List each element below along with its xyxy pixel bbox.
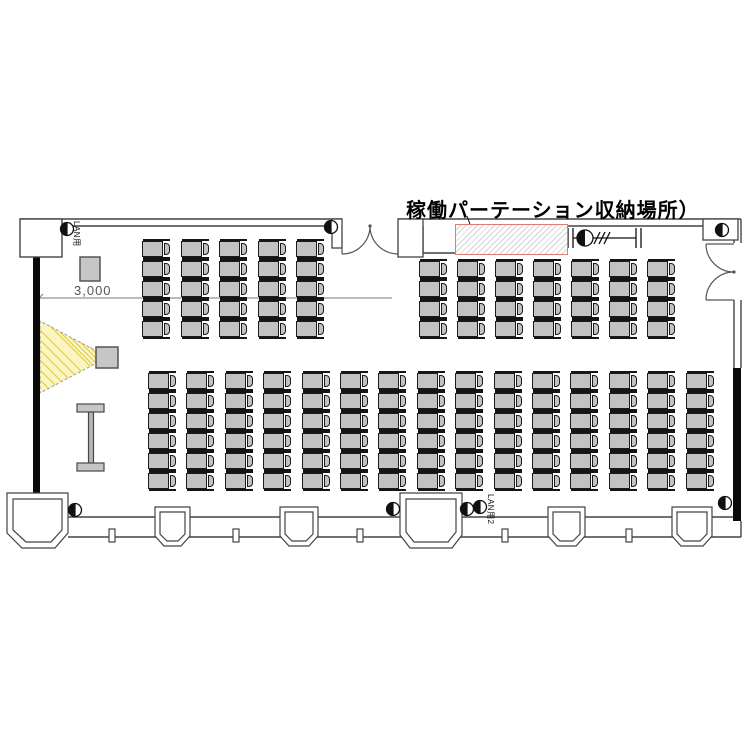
chair-backrest [592,435,598,447]
chair-seat [455,413,476,429]
chair [378,392,406,410]
floor-plan: 稼働パーテーション収納場所） 3,000 LAN用 LAN用2 [0,0,750,750]
chair [181,300,209,318]
chair [302,412,330,430]
chair-seat [457,321,478,337]
chair [148,392,176,410]
chair [378,452,406,470]
chair [570,452,598,470]
chair-seat [225,413,246,429]
chair-seat [571,301,592,317]
chair [302,432,330,450]
chair-backrest [324,395,330,407]
chair-backrest [554,395,560,407]
chair-backrest [631,475,637,487]
chair [571,280,599,298]
chair-seat [647,433,668,449]
chair-seat [532,413,553,429]
chair-seat [686,433,707,449]
chair-seat [225,473,246,489]
chair-backrest [280,283,286,295]
chair [647,280,675,298]
chair-seat [570,393,591,409]
chair [186,392,214,410]
chair-backrest [669,455,675,467]
chair-backrest [516,395,522,407]
chair-seat [296,321,317,337]
chair [494,452,522,470]
chair [647,320,675,338]
chair-seat [457,301,478,317]
chair [219,280,247,298]
chair-backrest [170,475,176,487]
chair-backrest [208,455,214,467]
chair-seat [419,261,440,277]
chair [296,240,324,258]
chair-seat [219,241,240,257]
chair [340,412,368,430]
chair [647,300,675,318]
chair-backrest [592,415,598,427]
chair-backrest [362,455,368,467]
chair-seat [186,413,207,429]
chair-seat [417,413,438,429]
chair [302,372,330,390]
chair-backrest [631,455,637,467]
chair-seat [419,301,440,317]
chair-backrest [247,415,253,427]
chair-backrest [324,455,330,467]
chair-seat [495,301,516,317]
chair-seat [609,321,630,337]
chair [258,300,286,318]
chair-backrest [280,263,286,275]
chair-backrest [400,435,406,447]
chair [686,412,714,430]
chair-seat [186,453,207,469]
chair [533,300,561,318]
chair-seat [225,453,246,469]
chair [533,260,561,278]
chair-seat [225,433,246,449]
chair-backrest [708,375,714,387]
chair [378,412,406,430]
chair-backrest [631,395,637,407]
chair [570,372,598,390]
chair-backrest [669,303,675,315]
chair-backrest [318,243,324,255]
chair [148,412,176,430]
chair [181,240,209,258]
chair-backrest [247,375,253,387]
chair-backrest [324,375,330,387]
chair [417,432,445,450]
chair-backrest [708,395,714,407]
chair-backrest [631,435,637,447]
chair-backrest [362,395,368,407]
chair [225,452,253,470]
chair-seat [532,473,553,489]
chair [495,300,523,318]
chair-backrest [479,263,485,275]
chair [647,452,675,470]
chair-backrest [554,375,560,387]
chair [686,432,714,450]
chair [263,472,291,490]
chair-seat [302,413,323,429]
chair [219,240,247,258]
chair-backrest [318,303,324,315]
chair-seat [455,453,476,469]
chair-seat [609,393,630,409]
chair [455,472,483,490]
chair-backrest [517,323,523,335]
chair-seat [455,373,476,389]
chair-backrest [669,323,675,335]
chair-seat [571,321,592,337]
chair-backrest [555,323,561,335]
lan-outlet-label-top: LAN用 [71,221,82,247]
chair-backrest [517,303,523,315]
chair [148,432,176,450]
chair-seat [494,393,515,409]
chair-backrest [517,263,523,275]
chair-seat [181,241,202,257]
chair-seat [609,473,630,489]
chair [186,432,214,450]
chair [219,260,247,278]
chair-backrest [669,395,675,407]
chair-seat [142,321,163,337]
chair-backrest [516,415,522,427]
chair [186,452,214,470]
chair [296,300,324,318]
chair [532,392,560,410]
chair-backrest [555,283,561,295]
chair [533,280,561,298]
chair-seat [686,373,707,389]
chair [647,372,675,390]
chair [609,452,637,470]
chair [647,472,675,490]
chair-seat [532,433,553,449]
chair [142,320,170,338]
chair-seat [181,281,202,297]
chair-seat [494,373,515,389]
chair-seat [378,433,399,449]
chair [378,432,406,450]
chair-backrest [592,475,598,487]
chair-backrest [285,455,291,467]
chair [494,392,522,410]
chair [225,472,253,490]
chair-backrest [208,475,214,487]
chair [417,412,445,430]
chair [419,260,447,278]
chair [609,412,637,430]
chair [647,392,675,410]
chair [417,372,445,390]
chair-backrest [439,375,445,387]
chair-seat [378,373,399,389]
chair-seat [263,433,284,449]
chair-seat [340,413,361,429]
chair-seat [148,373,169,389]
chair-seat [296,261,317,277]
chair-backrest [479,283,485,295]
chair-backrest [208,395,214,407]
chair [571,300,599,318]
chair-seat [494,473,515,489]
chair-backrest [362,375,368,387]
chair-seat [494,433,515,449]
chair [225,392,253,410]
chair-seat [533,261,554,277]
chair-seat [263,413,284,429]
chair-seat [302,433,323,449]
chair-backrest [203,303,209,315]
chair [532,412,560,430]
chair-backrest [439,455,445,467]
chair-seat [647,413,668,429]
chair-seat [495,261,516,277]
chair-backrest [247,475,253,487]
chair-seat [532,453,553,469]
chair-seat [419,281,440,297]
chair-backrest [439,475,445,487]
chair-backrest [477,415,483,427]
chair [455,452,483,470]
chair-backrest [669,375,675,387]
chair [302,472,330,490]
chair-seat [186,433,207,449]
chair-backrest [400,375,406,387]
chair [263,452,291,470]
chair [378,472,406,490]
chair [181,280,209,298]
chair-seat [570,473,591,489]
chair-backrest [285,395,291,407]
chair-backrest [631,263,637,275]
chair-backrest [592,455,598,467]
chair-backrest [477,435,483,447]
chair-seat [419,321,440,337]
chair-seat [258,261,279,277]
chair-backrest [208,435,214,447]
chair-backrest [241,303,247,315]
chair-backrest [318,323,324,335]
chair-backrest [362,475,368,487]
chair-backrest [318,283,324,295]
chair-seat [417,373,438,389]
chair-backrest [170,455,176,467]
chair-seat [457,281,478,297]
chair-backrest [441,283,447,295]
chair-seat [417,453,438,469]
chair-backrest [439,435,445,447]
chair-seat [181,321,202,337]
chair [494,372,522,390]
chair [495,260,523,278]
chair-backrest [441,323,447,335]
chair [532,432,560,450]
chair-backrest [170,375,176,387]
chair-backrest [479,303,485,315]
chair-backrest [554,475,560,487]
chair-seat [186,393,207,409]
chair [417,452,445,470]
chair-seat [142,281,163,297]
chair [148,472,176,490]
chair [494,472,522,490]
chair-seat [647,393,668,409]
chair [457,300,485,318]
chair [258,240,286,258]
chair-backrest [400,475,406,487]
chair-backrest [593,303,599,315]
chair-seat [148,393,169,409]
chair-seat [219,261,240,277]
chair-seat [263,373,284,389]
chair-backrest [708,475,714,487]
chair-seat [495,321,516,337]
chair [609,300,637,318]
chair [494,432,522,450]
chair-backrest [669,415,675,427]
chair-backrest [554,415,560,427]
chair [186,372,214,390]
chair-backrest [631,375,637,387]
chair-backrest [203,323,209,335]
chair [570,392,598,410]
chair-seat [686,413,707,429]
chair-seat [340,453,361,469]
chair-seat [296,241,317,257]
chair-backrest [669,435,675,447]
chair-seat [647,321,668,337]
chair-seat [258,301,279,317]
chair [142,240,170,258]
chair [571,260,599,278]
chair-backrest [479,323,485,335]
chair-backrest [324,435,330,447]
chair-seat [219,301,240,317]
chair-backrest [592,375,598,387]
chair-backrest [441,303,447,315]
chair-backrest [247,455,253,467]
chair-backrest [203,263,209,275]
chair [457,280,485,298]
chair-backrest [631,323,637,335]
chair-backrest [164,263,170,275]
chair-seat [302,373,323,389]
chair-backrest [669,475,675,487]
chair-backrest [631,303,637,315]
chair [417,472,445,490]
chair-seat [148,433,169,449]
chair-seat [609,433,630,449]
chair [340,392,368,410]
chair-backrest [285,375,291,387]
chair [181,260,209,278]
chair-seat [533,321,554,337]
chair-backrest [555,263,561,275]
seating-area [0,0,750,750]
chair-seat [609,453,630,469]
chair [186,472,214,490]
chair [686,392,714,410]
chair-backrest [285,435,291,447]
chair [142,300,170,318]
chair [340,372,368,390]
chair-backrest [241,323,247,335]
chair [263,392,291,410]
partition-storage-title: 稼働パーテーション収納場所） [406,194,700,223]
chair [609,320,637,338]
chair [225,372,253,390]
chair-seat [181,261,202,277]
chair-backrest [362,435,368,447]
chair [142,280,170,298]
chair-seat [417,473,438,489]
chair-backrest [400,395,406,407]
chair [686,472,714,490]
chair-seat [647,373,668,389]
chair-backrest [477,475,483,487]
chair-backrest [439,415,445,427]
chair [302,392,330,410]
chair [533,320,561,338]
chair-seat [148,453,169,469]
chair-seat [181,301,202,317]
chair-backrest [631,283,637,295]
chair [455,372,483,390]
chair [258,260,286,278]
chair [186,412,214,430]
chair [219,300,247,318]
chair [225,432,253,450]
chair-seat [148,413,169,429]
chair-backrest [318,263,324,275]
chair-seat [302,453,323,469]
chair [609,260,637,278]
chair-backrest [208,375,214,387]
chair-backrest [203,283,209,295]
chair-seat [686,453,707,469]
chair [263,432,291,450]
chair-seat [647,473,668,489]
dimension-label: 3,000 [74,283,112,298]
chair-seat [533,301,554,317]
chair [417,392,445,410]
chair [340,472,368,490]
chair-seat [532,393,553,409]
chair-seat [258,321,279,337]
chair-seat [296,301,317,317]
chair-backrest [708,455,714,467]
chair [571,320,599,338]
chair-seat [455,393,476,409]
chair-seat [302,473,323,489]
chair-backrest [285,475,291,487]
chair-backrest [241,263,247,275]
chair-backrest [400,415,406,427]
chair-seat [340,373,361,389]
chair-seat [142,301,163,317]
chair-seat [142,241,163,257]
chair [148,452,176,470]
chair-seat [647,261,668,277]
